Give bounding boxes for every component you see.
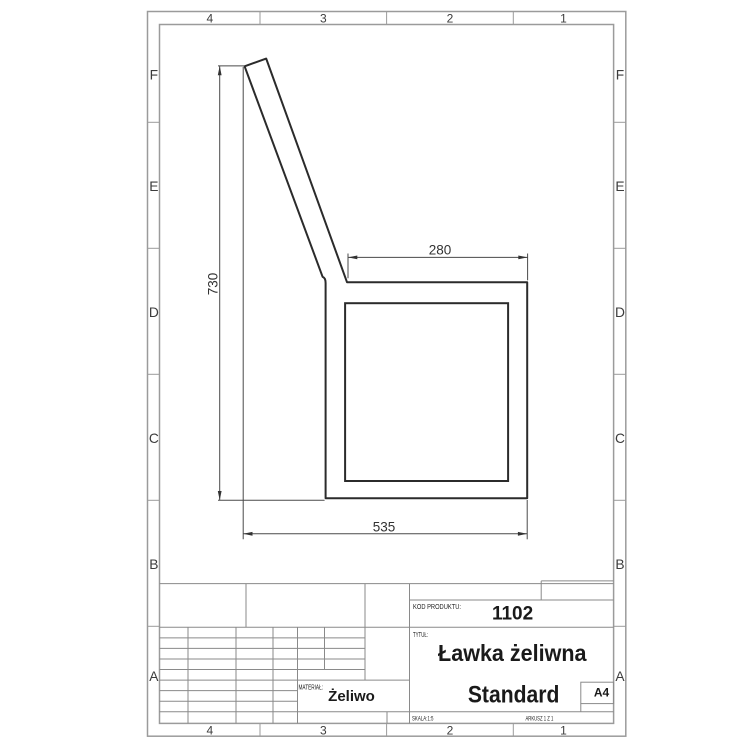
svg-text:A: A — [615, 669, 625, 684]
svg-text:C: C — [149, 431, 159, 446]
svg-text:TYTUŁ:: TYTUŁ: — [413, 632, 428, 639]
svg-text:A4: A4 — [594, 686, 610, 700]
svg-text:B: B — [149, 557, 158, 572]
svg-text:535: 535 — [373, 520, 396, 535]
svg-text:4: 4 — [206, 723, 213, 737]
svg-text:1: 1 — [560, 723, 567, 737]
svg-text:280: 280 — [429, 243, 452, 258]
svg-text:Ławka żeliwna: Ławka żeliwna — [438, 640, 587, 666]
svg-text:4: 4 — [206, 12, 213, 26]
svg-text:F: F — [616, 67, 624, 82]
svg-text:F: F — [150, 67, 158, 82]
svg-text:B: B — [615, 557, 624, 572]
svg-text:Żeliwo: Żeliwo — [328, 688, 375, 705]
svg-text:E: E — [615, 179, 624, 194]
svg-text:MATERIAŁ:: MATERIAŁ: — [299, 685, 324, 692]
svg-text:KOD PRODUKTU:: KOD PRODUKTU: — [413, 604, 461, 611]
svg-text:1: 1 — [560, 12, 567, 26]
svg-text:730: 730 — [205, 273, 220, 296]
svg-text:2: 2 — [447, 723, 454, 737]
svg-text:D: D — [149, 305, 159, 320]
svg-text:3: 3 — [320, 723, 327, 737]
svg-text:A: A — [149, 669, 159, 684]
svg-text:Standard: Standard — [468, 682, 560, 709]
svg-text:E: E — [149, 179, 158, 194]
svg-text:SKALA:1:5: SKALA:1:5 — [412, 717, 434, 723]
svg-text:D: D — [615, 305, 625, 320]
svg-text:1102: 1102 — [492, 604, 533, 625]
svg-text:2: 2 — [447, 12, 454, 26]
svg-text:3: 3 — [320, 12, 327, 26]
svg-text:ARKUSZ 1 Z 1: ARKUSZ 1 Z 1 — [526, 717, 554, 723]
svg-text:C: C — [615, 431, 625, 446]
